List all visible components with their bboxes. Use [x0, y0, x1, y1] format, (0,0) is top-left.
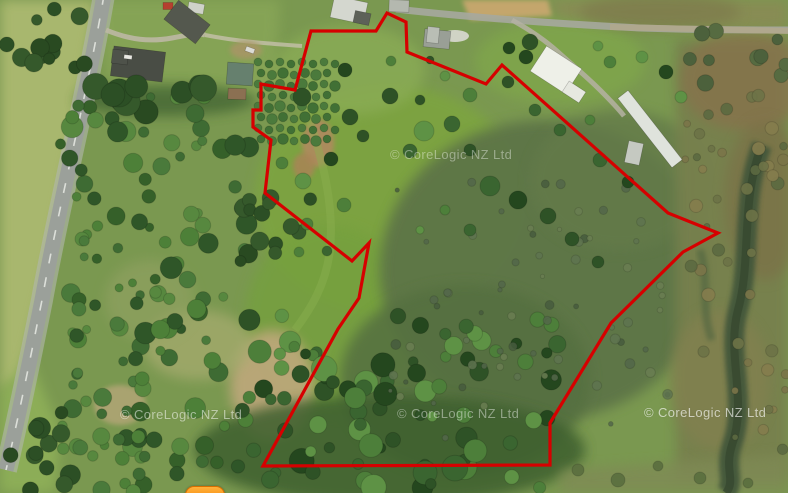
aerial-imagery — [0, 0, 788, 493]
aerial-map[interactable]: © CoreLogic NZ Ltd © CoreLogic NZ Ltd © … — [0, 0, 788, 493]
orange-marker-button[interactable] — [185, 486, 225, 493]
